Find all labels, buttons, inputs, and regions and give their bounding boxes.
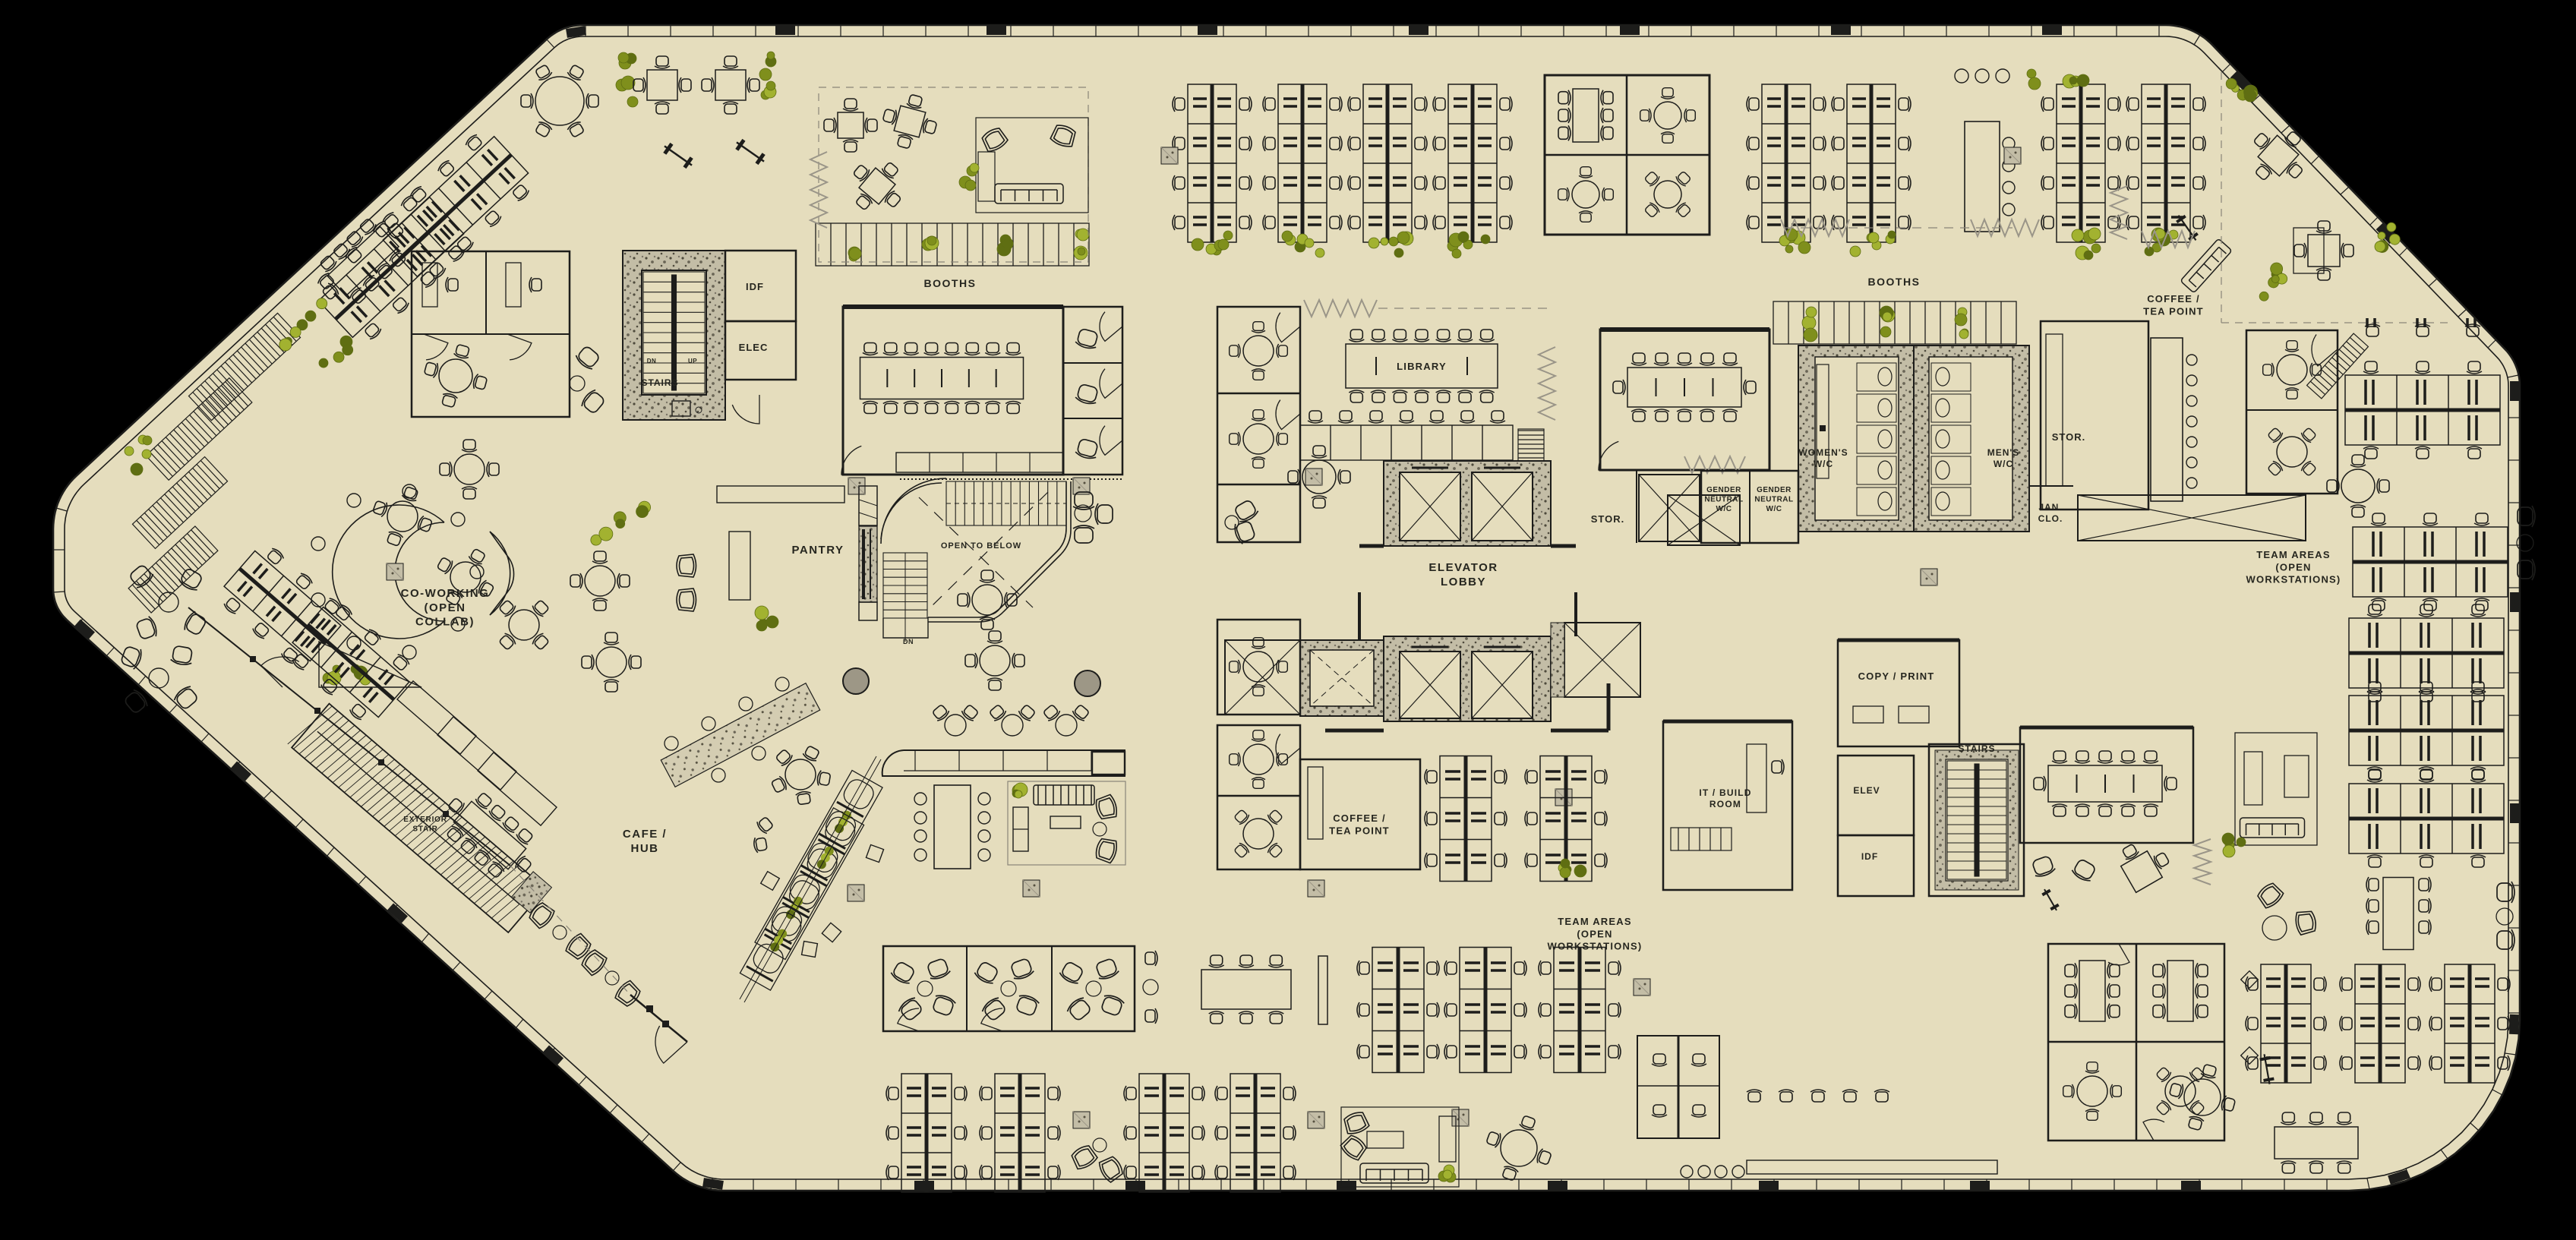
svg-text:GENDER: GENDER [1757,486,1792,494]
svg-text:TEA POINT: TEA POINT [2143,305,2204,317]
svg-text:WORKSTATIONS): WORKSTATIONS) [2246,574,2341,585]
svg-text:IDF: IDF [1861,851,1878,862]
svg-text:(OPEN: (OPEN [1577,928,1612,939]
svg-text:W/C: W/C [1766,505,1782,513]
svg-text:CO-WORKING: CO-WORKING [401,587,490,600]
svg-text:WOMEN'S: WOMEN'S [1798,447,1848,458]
svg-text:MEN'S: MEN'S [1987,447,2020,458]
svg-text:(OPEN: (OPEN [424,601,466,614]
svg-text:ROOM: ROOM [1709,799,1741,809]
svg-text:CLO.: CLO. [2038,513,2063,524]
svg-text:BOOTHS: BOOTHS [1868,276,1921,288]
svg-text:ELEVATOR: ELEVATOR [1428,561,1498,574]
svg-text:UP: UP [688,358,697,364]
svg-text:NEUTRAL: NEUTRAL [1704,496,1743,504]
svg-text:WORKSTATIONS): WORKSTATIONS) [1548,941,1643,952]
svg-text:TEAM AREAS: TEAM AREAS [1558,916,1631,927]
svg-text:BOOTHS: BOOTHS [924,277,977,289]
svg-text:STOR.: STOR. [1591,513,1625,525]
svg-text:OPEN TO BELOW: OPEN TO BELOW [941,541,1021,551]
svg-text:LOBBY: LOBBY [1441,576,1486,588]
svg-text:TEA POINT: TEA POINT [1329,825,1390,836]
svg-text:DN: DN [903,638,914,645]
svg-text:LIBRARY: LIBRARY [1397,361,1447,372]
svg-text:PANTRY: PANTRY [792,544,844,557]
svg-text:IT / BUILD: IT / BUILD [1699,787,1751,798]
svg-text:ELEC: ELEC [739,342,769,353]
svg-text:IDF: IDF [746,281,764,292]
svg-text:EXTERIOR: EXTERIOR [403,816,447,824]
svg-text:STAIRS: STAIRS [641,377,678,388]
svg-text:DN: DN [647,358,657,364]
svg-text:(OPEN: (OPEN [2275,561,2311,573]
svg-text:HUB: HUB [631,842,659,855]
svg-text:GENDER: GENDER [1706,486,1741,494]
svg-text:JAN.: JAN. [2038,502,2062,513]
svg-text:W/C: W/C [1814,459,1833,469]
svg-text:NEUTRAL: NEUTRAL [1754,496,1793,504]
svg-text:COPY / PRINT: COPY / PRINT [1858,670,1935,682]
svg-text:STAIRS: STAIRS [1958,743,1995,754]
svg-text:COFFEE /: COFFEE / [1333,812,1386,824]
svg-text:COLLAB): COLLAB) [415,616,475,629]
svg-text:TEAM AREAS: TEAM AREAS [2256,549,2330,560]
svg-text:CAFE /: CAFE / [623,828,667,841]
svg-text:COFFEE /: COFFEE / [2147,293,2200,304]
svg-text:STOR.: STOR. [2052,431,2086,443]
svg-text:W/C: W/C [1994,459,2013,469]
svg-text:W/C: W/C [1716,505,1732,513]
svg-text:ELEV: ELEV [1853,785,1880,796]
svg-text:STAIR: STAIR [412,825,437,834]
